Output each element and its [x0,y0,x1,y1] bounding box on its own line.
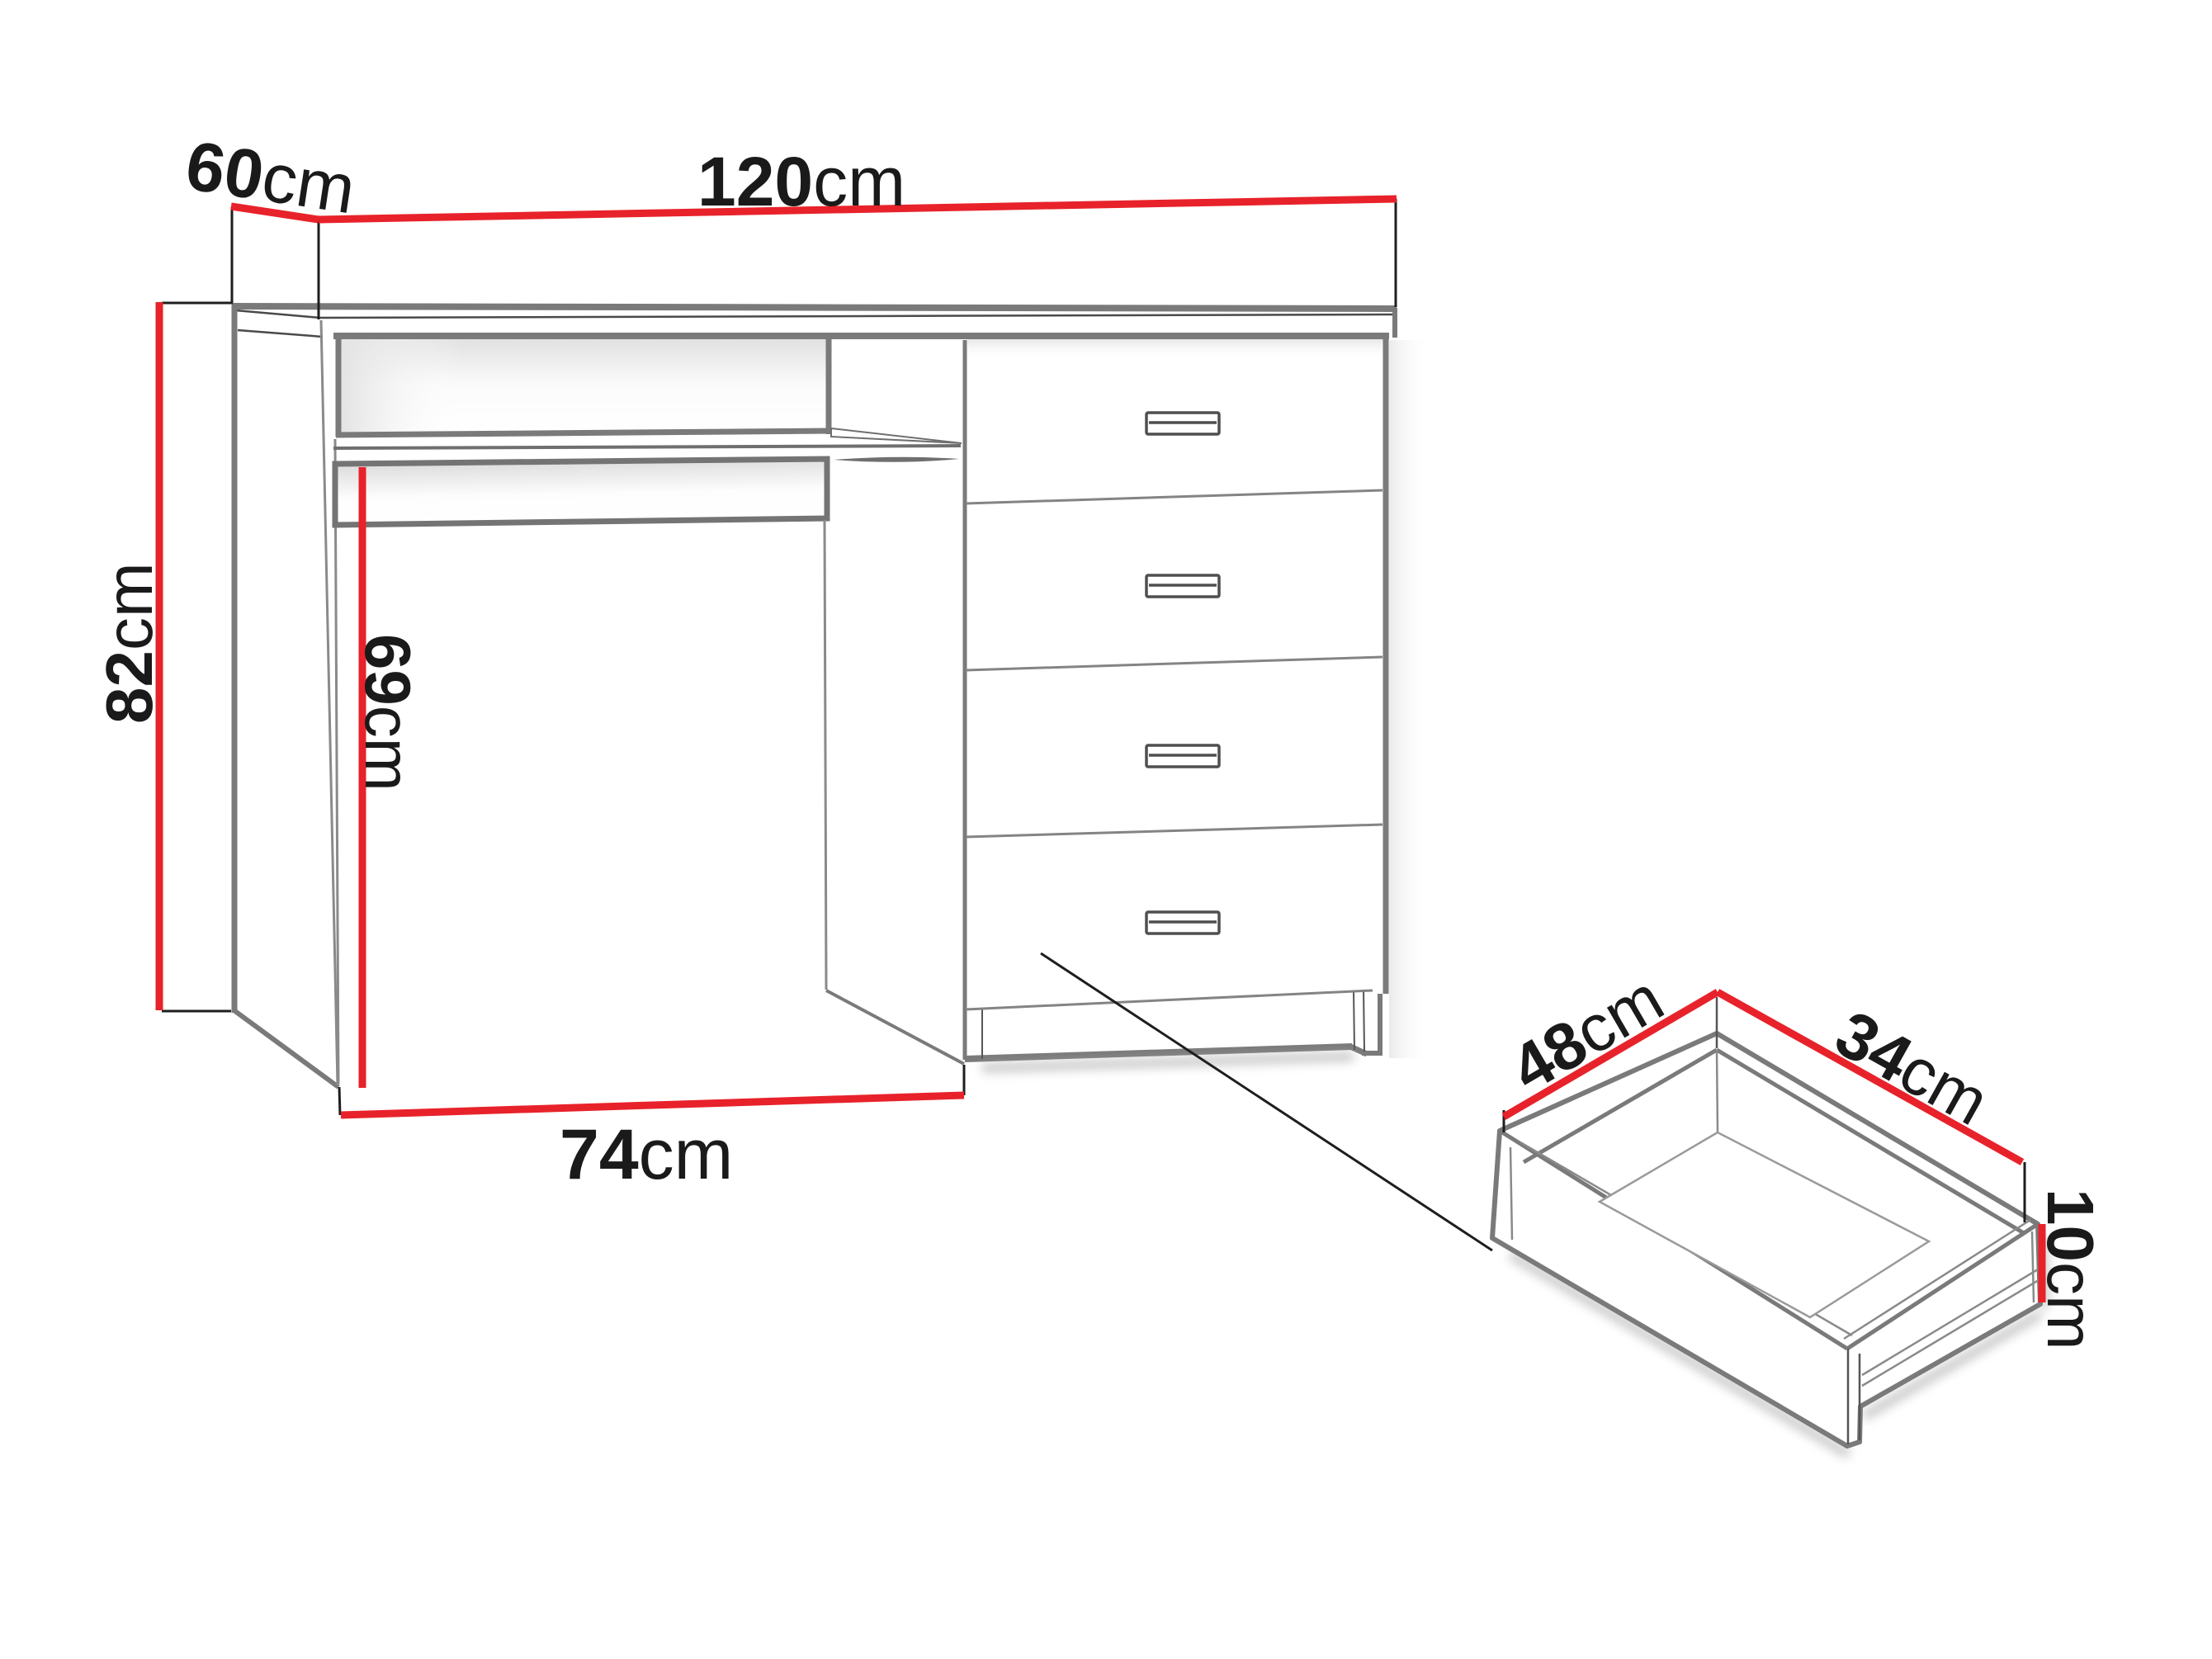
svg-text:10cm: 10cm [2034,1189,2107,1350]
svg-text:74cm: 74cm [560,1115,733,1194]
svg-text:120cm: 120cm [697,143,905,220]
svg-text:82cm: 82cm [92,562,166,724]
svg-text:60cm: 60cm [181,126,360,229]
svg-text:69cm: 69cm [352,634,424,792]
